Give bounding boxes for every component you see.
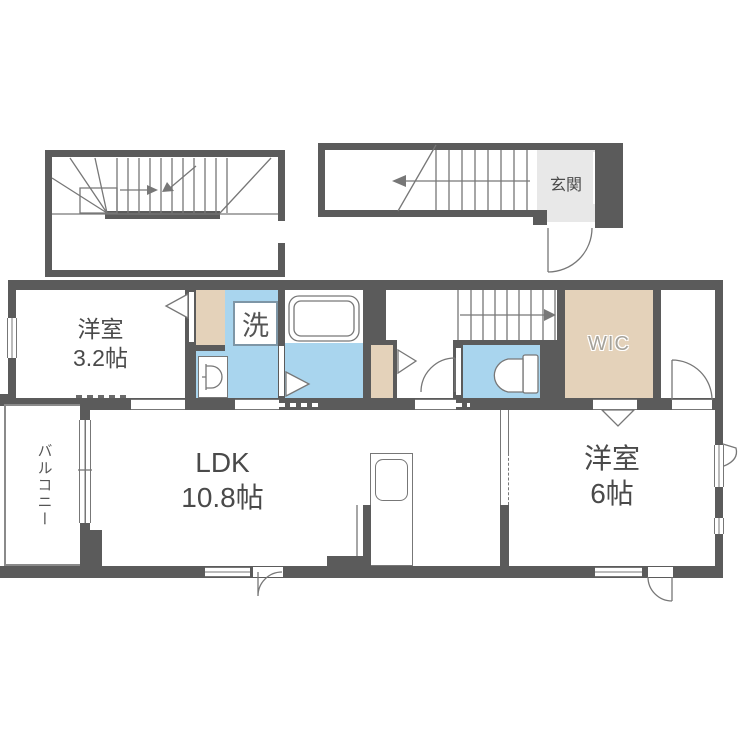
window-vent-arc <box>723 444 737 466</box>
corridor-door-arc <box>672 360 712 400</box>
floorplan-linework <box>0 0 750 750</box>
bedroom-door-arc <box>648 577 672 601</box>
sliding-door-indicator <box>602 410 634 426</box>
washbasin-icon <box>202 364 222 390</box>
sliding-door-indicator <box>166 294 188 318</box>
ldk-door-arc <box>258 572 282 596</box>
entrance-door-arc <box>548 228 592 272</box>
sliding-door-indicator <box>398 350 416 373</box>
floorplan: 玄関 洗 WIC バルコニー <box>0 0 750 750</box>
stairs-entry <box>398 145 530 211</box>
fixtures <box>202 296 538 393</box>
door-triangles <box>166 294 634 426</box>
toilet-icon <box>494 355 538 393</box>
hall-door-arc <box>421 358 455 392</box>
bathtub-icon <box>289 296 359 341</box>
sliding-door-indicator <box>286 372 309 396</box>
stairs-internal <box>458 290 555 340</box>
